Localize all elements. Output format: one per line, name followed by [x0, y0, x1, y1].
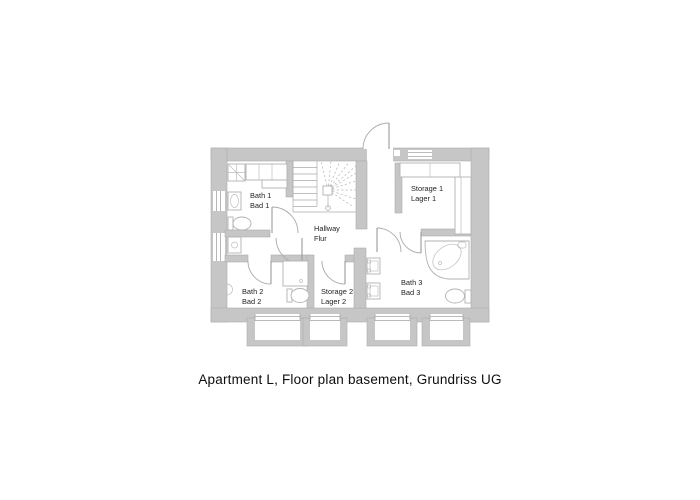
room-label-bath1-de: Bad 1 [250, 201, 269, 210]
floor-plan-drawing: Bath 1 Bad 1 Hallway Flur Storage 1 Lage… [0, 0, 700, 500]
room-label-bath2-de: Bad 2 [242, 297, 261, 306]
closet-symbol [246, 164, 287, 188]
toilet-symbol [446, 289, 472, 303]
toilet-symbol [228, 217, 251, 230]
corner-bathtub-symbol [425, 239, 469, 279]
room-label-hallway-en: Hallway [314, 224, 340, 233]
figure-caption: Apartment L, Floor plan basement, Grundr… [0, 372, 700, 387]
shower-symbol [228, 164, 245, 181]
room-label-storage2-en: Storage 2 [321, 287, 353, 296]
room-label-storage1-en: Storage 1 [411, 184, 443, 193]
room-label-hallway-de: Flur [314, 234, 327, 243]
staircase-winder-symbol [293, 161, 356, 212]
washbasin-symbol [367, 283, 380, 299]
room-label-storage2-de: Lager 2 [321, 297, 346, 306]
washbasin-symbol [367, 258, 380, 274]
room-label-bath1-en: Bath 1 [250, 191, 271, 200]
room-label-bath3-de: Bad 3 [401, 288, 420, 297]
room-label-bath2-en: Bath 2 [242, 287, 263, 296]
room-label-storage1-de: Lager 1 [411, 194, 436, 203]
washbasin-symbol [228, 237, 241, 253]
washbasin-symbol [228, 192, 241, 210]
shower-symbol [283, 261, 308, 286]
floor-plan-figure: Bath 1 Bad 1 Hallway Flur Storage 1 Lage… [0, 0, 700, 500]
room-label-bath3-en: Bath 3 [401, 278, 422, 287]
toilet-symbol [287, 289, 309, 303]
closet-symbol [455, 177, 471, 234]
closet-symbol [400, 163, 460, 177]
wall-fixture-symbol [227, 284, 233, 295]
